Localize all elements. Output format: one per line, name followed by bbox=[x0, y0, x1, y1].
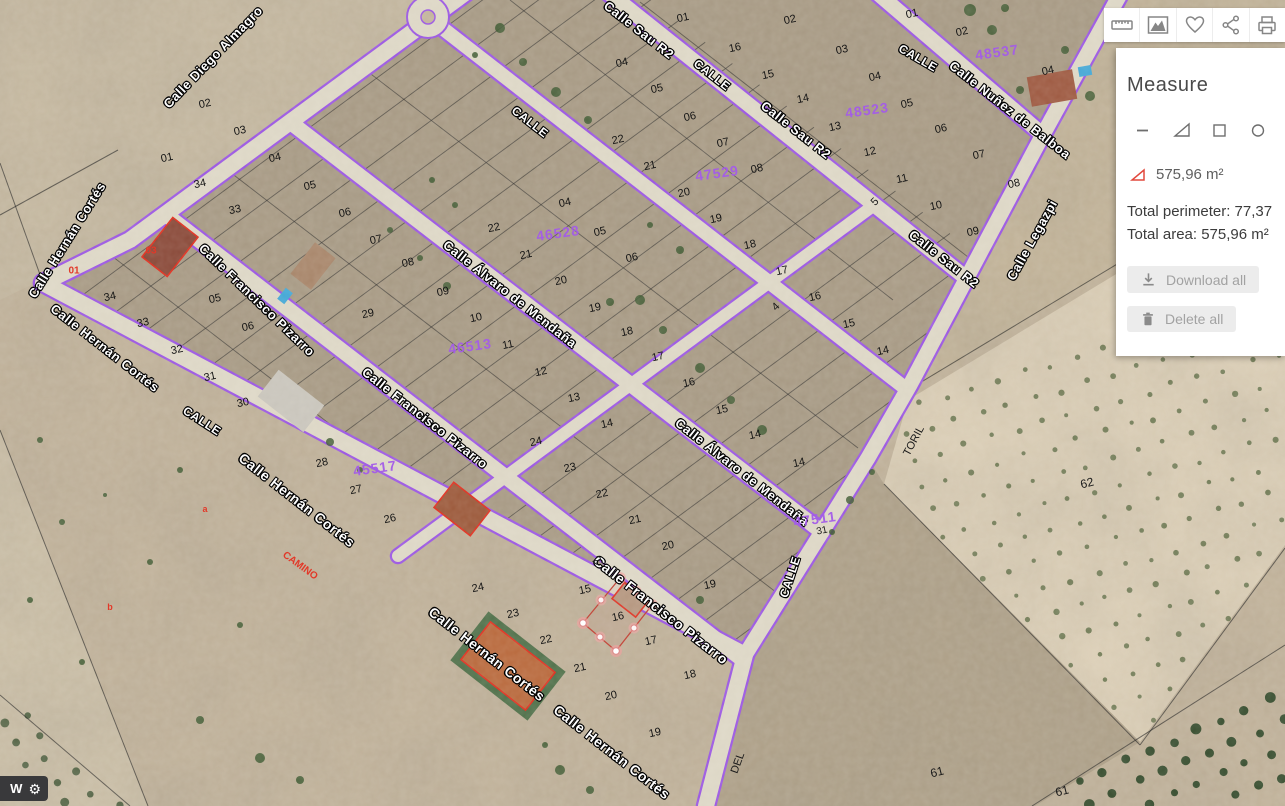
measurement-result-row: 575,96 m² bbox=[1130, 166, 1285, 183]
measure-midpoint-handle[interactable] bbox=[597, 634, 603, 640]
print-button[interactable] bbox=[1249, 8, 1285, 42]
measure-tools-row bbox=[1131, 117, 1285, 142]
heart-icon bbox=[1183, 13, 1207, 37]
panel-title: Measure bbox=[1127, 74, 1285, 97]
download-icon bbox=[1140, 271, 1157, 288]
circle-tool-icon bbox=[1248, 120, 1268, 140]
trash-icon bbox=[1140, 311, 1156, 327]
satellite-map[interactable] bbox=[0, 0, 1285, 806]
area-tool-button[interactable] bbox=[1169, 117, 1194, 142]
download-all-label: Download all bbox=[1166, 272, 1246, 288]
measure-panel: Measure 575,96 m² Total perimeter: 77,37… bbox=[1116, 48, 1285, 356]
line-tool-icon bbox=[1134, 120, 1154, 140]
measure-midpoint-handle[interactable] bbox=[631, 625, 637, 631]
total-area: Total area: 575,96 m² bbox=[1127, 223, 1285, 246]
measure-vertex-handle[interactable] bbox=[613, 648, 620, 655]
terrain-grain bbox=[0, 0, 1285, 806]
rectangle-tool-button[interactable] bbox=[1207, 117, 1232, 142]
gear-icon[interactable]: ⚙ bbox=[28, 782, 41, 796]
elevation-profile-button[interactable] bbox=[1139, 8, 1175, 42]
measure-vertex-handle[interactable] bbox=[617, 575, 624, 582]
area-triangle-tool-icon bbox=[1172, 120, 1192, 140]
area-measure-icon bbox=[1130, 167, 1146, 183]
measure-totals: Total perimeter: 77,37 Total area: 575,9… bbox=[1127, 200, 1285, 246]
ruler-icon bbox=[1110, 13, 1134, 37]
rectangle-tool-icon bbox=[1210, 120, 1230, 140]
ruler-measure-button[interactable] bbox=[1104, 8, 1139, 42]
measurement-value: 575,96 m² bbox=[1156, 166, 1224, 183]
measure-vertex-handle[interactable] bbox=[580, 620, 587, 627]
elevation-chart-icon bbox=[1146, 13, 1170, 37]
circle-tool-button[interactable] bbox=[1245, 117, 1270, 142]
favorite-button[interactable] bbox=[1176, 8, 1212, 42]
delete-all-button[interactable]: Delete all bbox=[1127, 306, 1236, 332]
printer-icon bbox=[1255, 13, 1279, 37]
delete-all-label: Delete all bbox=[1165, 311, 1223, 327]
map-viewport[interactable]: Calle Diego AlmagroCalle Hernán CortésCa… bbox=[0, 0, 1285, 806]
badge-text: W bbox=[10, 781, 22, 796]
download-all-button[interactable]: Download all bbox=[1127, 266, 1259, 293]
measure-midpoint-handle[interactable] bbox=[633, 588, 639, 594]
total-perimeter: Total perimeter: 77,37 bbox=[1127, 200, 1285, 223]
share-icon bbox=[1219, 13, 1243, 37]
line-tool-button[interactable] bbox=[1131, 117, 1156, 142]
map-toolbar bbox=[1104, 8, 1285, 42]
measure-midpoint-handle[interactable] bbox=[598, 597, 604, 603]
share-button[interactable] bbox=[1212, 8, 1248, 42]
watermark-badge: W ⚙ bbox=[0, 776, 48, 801]
measure-vertex-handle[interactable] bbox=[649, 602, 656, 609]
